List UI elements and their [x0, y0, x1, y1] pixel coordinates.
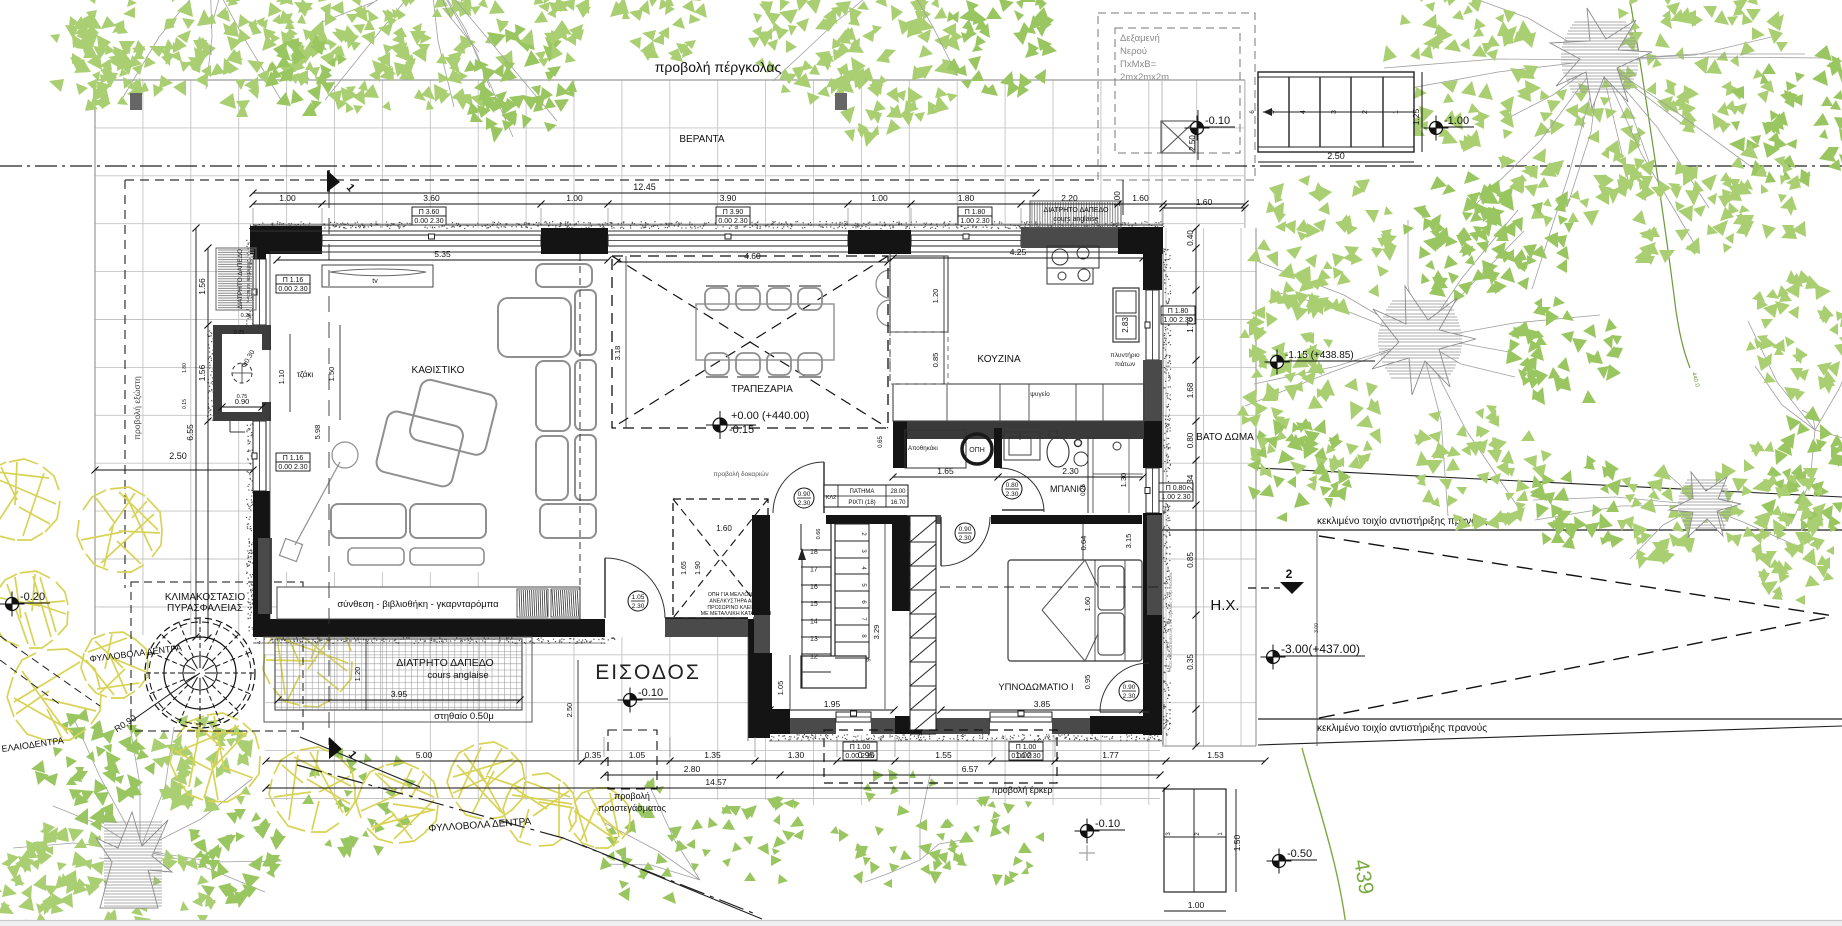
svg-text:1.00: 1.00 — [1188, 900, 1205, 910]
svg-text:Π 1.16: Π 1.16 — [283, 455, 304, 462]
svg-text:0.64: 0.64 — [1079, 536, 1088, 551]
svg-text:2.30: 2.30 — [632, 603, 645, 610]
svg-text:ΒΕΡΑΝΤΑ: ΒΕΡΑΝΤΑ — [679, 134, 725, 145]
svg-text:2.30: 2.30 — [1123, 693, 1136, 700]
svg-text:τζάκι: τζάκι — [297, 370, 314, 379]
svg-text:2.50: 2.50 — [1188, 135, 1197, 151]
svg-text:πιάτων: πιάτων — [1115, 360, 1136, 368]
svg-text:0.80: 0.80 — [1186, 432, 1195, 448]
svg-text:-0.20: -0.20 — [20, 591, 45, 603]
svg-text:1.00: 1.00 — [566, 193, 583, 203]
svg-text:0.25: 0.25 — [241, 313, 252, 319]
svg-text:1.00 2.30: 1.00 2.30 — [1161, 494, 1190, 501]
svg-text:ΚΟΥΖΙΝΑ: ΚΟΥΖΙΝΑ — [977, 354, 1021, 365]
svg-text:0.90: 0.90 — [959, 526, 972, 533]
svg-text:0.85: 0.85 — [1186, 552, 1195, 568]
svg-text:1.50: 1.50 — [327, 367, 336, 382]
svg-text:2.50: 2.50 — [565, 703, 574, 718]
svg-text:0.40: 0.40 — [1186, 230, 1195, 246]
svg-text:12.45: 12.45 — [633, 182, 656, 192]
svg-text:14.57: 14.57 — [705, 777, 727, 787]
svg-text:1.30: 1.30 — [788, 750, 805, 760]
svg-text:προστεγάσματος: προστεγάσματος — [598, 803, 667, 813]
svg-text:πλυντήριο: πλυντήριο — [1110, 352, 1140, 359]
svg-text:1.50: 1.50 — [1232, 834, 1242, 851]
svg-text:Π 3.90: Π 3.90 — [723, 209, 744, 216]
svg-text:1.80: 1.80 — [958, 193, 975, 203]
svg-text:ΥΠΝΟΔΩΜΑΤΙΟ Ι: ΥΠΝΟΔΩΜΑΤΙΟ Ι — [998, 682, 1073, 693]
svg-text:Νερού: Νερού — [1120, 46, 1147, 57]
svg-text:0.90: 0.90 — [1123, 684, 1136, 691]
svg-text:16.70: 16.70 — [890, 500, 906, 506]
svg-text:2: 2 — [1286, 567, 1293, 581]
svg-text:0.80: 0.80 — [1006, 482, 1019, 489]
svg-text:ΚΑΘΙΣΤΙΚΟ: ΚΑΘΙΣΤΙΚΟ — [412, 365, 465, 376]
svg-text:-0.15: -0.15 — [729, 424, 754, 436]
svg-text:ΔΙΑΤΡΗΤΟ ΔΑΠΕΔΟ: ΔΙΑΤΡΗΤΟ ΔΑΠΕΔΟ — [1044, 207, 1110, 214]
svg-text:0.65: 0.65 — [878, 436, 884, 448]
svg-text:3.85: 3.85 — [1034, 699, 1051, 709]
svg-text:2mx2mx2m: 2mx2mx2m — [1120, 72, 1169, 83]
svg-text:3.18: 3.18 — [613, 346, 622, 361]
svg-text:1.20: 1.20 — [353, 667, 362, 682]
svg-text:1.65: 1.65 — [681, 561, 688, 575]
svg-text:0.00 2.30: 0.00 2.30 — [278, 464, 307, 471]
svg-text:+0.00 (+440.00): +0.00 (+440.00) — [731, 410, 809, 422]
svg-text:κεκλιμένο τοιχίο αντιστήριξης: κεκλιμένο τοιχίο αντιστήριξης πρανούς — [1317, 722, 1487, 734]
svg-text:15: 15 — [810, 601, 818, 608]
svg-text:1.60: 1.60 — [1083, 597, 1092, 612]
svg-text:4.25: 4.25 — [1010, 247, 1027, 257]
svg-text:1.60: 1.60 — [716, 524, 732, 533]
svg-text:0.15: 0.15 — [182, 399, 188, 409]
svg-text:1.65: 1.65 — [937, 466, 954, 476]
svg-text:3.60: 3.60 — [423, 193, 440, 203]
svg-text:προβολή έρκερ: προβολή έρκερ — [991, 785, 1052, 795]
svg-text:1.25: 1.25 — [1411, 108, 1421, 125]
svg-text:1.90: 1.90 — [695, 561, 702, 575]
svg-text:2.34: 2.34 — [1186, 474, 1195, 490]
svg-text:ΡΙΧΤΙ (18): ΡΙΧΤΙ (18) — [848, 500, 875, 506]
svg-text:1.00 2.30: 1.00 2.30 — [960, 218, 989, 225]
svg-text:3.00: 3.00 — [1314, 623, 1320, 633]
svg-text:1.60: 1.60 — [1196, 197, 1213, 207]
svg-text:14: 14 — [810, 619, 818, 626]
svg-text:28.00: 28.00 — [890, 489, 906, 495]
svg-text:2.80: 2.80 — [684, 764, 701, 774]
svg-text:2.83: 2.83 — [1121, 317, 1130, 333]
svg-text:-1.00: -1.00 — [1444, 115, 1469, 127]
svg-text:0.35: 0.35 — [1186, 654, 1195, 670]
svg-text:0.00 2.30: 0.00 2.30 — [414, 218, 443, 225]
svg-text:1.30: 1.30 — [1119, 473, 1128, 488]
svg-text:16: 16 — [810, 584, 818, 591]
svg-text:1.53: 1.53 — [1207, 750, 1224, 760]
svg-text:0.66: 0.66 — [816, 529, 822, 540]
svg-text:Π 1.80: Π 1.80 — [1168, 308, 1189, 315]
svg-text:1.10: 1.10 — [277, 370, 286, 385]
svg-text:2.30: 2.30 — [798, 500, 811, 507]
svg-text:ΚΛΙΜΑΚΟΣΤΑΣΙΟ: ΚΛΙΜΑΚΟΣΤΑΣΙΟ — [165, 592, 245, 603]
svg-text:3.90: 3.90 — [720, 193, 737, 203]
svg-text:ΠΥΡΑΣΦΑΛΕΙΑΣ: ΠΥΡΑΣΦΑΛΕΙΑΣ — [167, 603, 243, 614]
svg-text:ΔΙΑΤΡΗΤΟ ΔΑΠΕΔΟ: ΔΙΑΤΡΗΤΟ ΔΑΠΕΔΟ — [237, 249, 244, 309]
svg-text:1.00: 1.00 — [871, 193, 888, 203]
svg-text:0.00 2.30: 0.00 2.30 — [278, 286, 307, 293]
svg-text:-1.15 (+438.85): -1.15 (+438.85) — [1285, 350, 1354, 361]
svg-text:6.57: 6.57 — [962, 764, 979, 774]
svg-text:-0.10: -0.10 — [638, 687, 663, 699]
svg-text:Π 3.60: Π 3.60 — [419, 209, 440, 216]
svg-text:cours anglaise: cours anglaise — [246, 261, 252, 296]
svg-text:1.56: 1.56 — [197, 364, 207, 381]
svg-text:Π 0.80: Π 0.80 — [1166, 485, 1187, 492]
svg-text:2.50: 2.50 — [169, 451, 187, 461]
svg-text:18: 18 — [810, 549, 818, 556]
svg-text:1.70: 1.70 — [1186, 317, 1195, 333]
svg-text:0.35: 0.35 — [585, 750, 602, 760]
svg-text:1.68: 1.68 — [1186, 382, 1195, 398]
svg-text:1.80: 1.80 — [182, 363, 188, 373]
svg-text:ΟΠΗ: ΟΠΗ — [969, 447, 985, 454]
svg-text:1.56: 1.56 — [197, 278, 207, 295]
svg-text:1.00: 1.00 — [279, 193, 296, 203]
svg-text:1.55: 1.55 — [935, 750, 952, 760]
svg-text:2.30: 2.30 — [1006, 491, 1019, 498]
svg-text:3.95: 3.95 — [391, 689, 408, 699]
svg-text:17: 17 — [810, 566, 818, 573]
svg-text:-0.10: -0.10 — [1205, 115, 1230, 127]
svg-text:1.95: 1.95 — [824, 699, 841, 709]
svg-text:ΕΙΣΟΔΟΣ: ΕΙΣΟΔΟΣ — [595, 661, 701, 684]
svg-text:ΠxΜxΒ=: ΠxΜxΒ= — [1120, 59, 1157, 70]
svg-text:ΤΡΑΠΕΖΑΡΙΑ: ΤΡΑΠΕΖΑΡΙΑ — [731, 384, 793, 395]
svg-text:1.35: 1.35 — [704, 750, 721, 760]
svg-text:0.95: 0.95 — [858, 750, 875, 760]
svg-text:2.30: 2.30 — [959, 535, 972, 542]
svg-text:προβολή δοκαριών: προβολή δοκαριών — [713, 470, 768, 478]
svg-text:Π 1.16: Π 1.16 — [283, 277, 304, 284]
svg-text:cours anglaise: cours anglaise — [427, 670, 488, 681]
svg-text:ΜΠΑΝΙΟ: ΜΠΑΝΙΟ — [1050, 484, 1086, 494]
svg-text:1.00: 1.00 — [1015, 750, 1032, 760]
svg-text:3.29: 3.29 — [872, 625, 881, 640]
svg-text:1.60: 1.60 — [1132, 193, 1149, 203]
svg-text:1.20: 1.20 — [931, 289, 940, 304]
svg-text:1.05: 1.05 — [632, 594, 645, 601]
svg-text:1.05: 1.05 — [629, 750, 646, 760]
svg-text:2.30: 2.30 — [1062, 466, 1079, 476]
svg-text:1.77: 1.77 — [1102, 750, 1119, 760]
svg-text:1.00: 1.00 — [1113, 191, 1122, 207]
svg-text:0.85: 0.85 — [931, 353, 940, 368]
svg-text:Αποθηκάκι: Αποθηκάκι — [908, 445, 938, 452]
svg-text:ΒΑΤΟ ΔΩΜΑ: ΒΑΤΟ ΔΩΜΑ — [1196, 432, 1254, 443]
svg-text:προβολή πέργκολας: προβολή πέργκολας — [655, 59, 782, 75]
svg-text:tv: tv — [372, 278, 378, 285]
svg-text:-0.10: -0.10 — [1095, 818, 1120, 830]
svg-text:ΠΑΤΗΜΑ: ΠΑΤΗΜΑ — [850, 489, 875, 495]
svg-text:5.35: 5.35 — [434, 249, 451, 259]
svg-text:ψυγείο: ψυγείο — [1030, 390, 1050, 398]
svg-text:Π 1.80: Π 1.80 — [965, 209, 986, 216]
svg-text:13: 13 — [810, 636, 818, 643]
svg-text:ΔΙΑΤΡΗΤΟ ΔΑΠΕΔΟ: ΔΙΑΤΡΗΤΟ ΔΑΠΕΔΟ — [396, 657, 493, 669]
svg-text:ΚΛ2: ΚΛ2 — [826, 495, 836, 501]
svg-text:5.00: 5.00 — [416, 750, 433, 760]
svg-text:2.50: 2.50 — [1327, 151, 1345, 161]
svg-text:5.98: 5.98 — [313, 425, 322, 440]
svg-text:στηθαίο 0.50μ: στηθαίο 0.50μ — [434, 711, 494, 722]
svg-text:0.90: 0.90 — [798, 491, 811, 498]
svg-text:0.75: 0.75 — [237, 394, 248, 400]
svg-text:2.20: 2.20 — [1061, 193, 1078, 203]
svg-text:4.60: 4.60 — [744, 251, 761, 261]
svg-text:Δεξαμενή: Δεξαμενή — [1120, 33, 1160, 44]
svg-text:-3.00(+437.00): -3.00(+437.00) — [1281, 642, 1360, 656]
svg-text:κατ. ξυλοκατασκευή υπδ 3/μελία: κατ. ξυλοκατασκευή υπδ 3/μελίας υπέρ 50x… — [1167, 572, 1173, 668]
svg-text:Η.Χ.: Η.Χ. — [1210, 597, 1239, 614]
svg-text:6.55: 6.55 — [185, 424, 195, 441]
svg-text:0.95: 0.95 — [1083, 675, 1092, 690]
svg-text:1.05: 1.05 — [776, 681, 785, 696]
svg-text:0.00 2.30: 0.00 2.30 — [718, 218, 747, 225]
svg-text:-0.50: -0.50 — [1287, 848, 1312, 860]
svg-text:σύνθεση - βιβλιοθήκη - γκαρντα: σύνθεση - βιβλιοθήκη - γκαρνταρόμπα — [337, 599, 499, 610]
svg-text:3.15: 3.15 — [1124, 534, 1133, 549]
svg-text:0.25: 0.25 — [234, 330, 245, 336]
svg-text:cours anglaise: cours anglaise — [1053, 216, 1098, 223]
svg-text:προβολή εξώστη: προβολή εξώστη — [132, 376, 142, 440]
svg-text:12: 12 — [810, 653, 818, 660]
svg-text:προβολή: προβολή — [614, 791, 650, 801]
